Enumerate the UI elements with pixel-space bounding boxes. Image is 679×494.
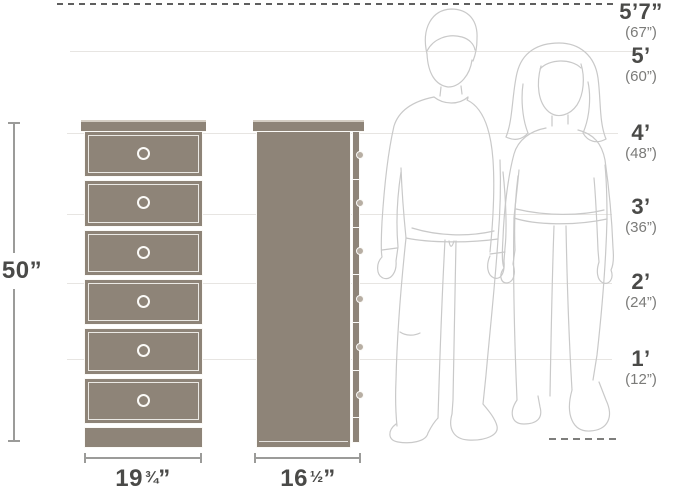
side-depth-label: 16½”: [253, 465, 363, 493]
height-dim-tick-bottom: [8, 440, 20, 442]
drawer-knob-profile: [356, 295, 364, 303]
dresser-side-top-surface: [253, 120, 364, 131]
drawer-knob: [137, 196, 150, 209]
height-label-2ft: 2’ (24”): [608, 271, 674, 310]
front-width-label: 19¾”: [88, 465, 198, 493]
product-dimension-diagram: 5’7” (67”) 5’ (60”) 4’ (48”) 3’ (36”) 2’…: [0, 0, 679, 494]
drawer-edge-4: [353, 275, 359, 323]
drawer-knob: [137, 147, 150, 160]
height-value: 2’: [608, 271, 674, 293]
drawer-knob: [137, 394, 150, 407]
man-figure: [378, 9, 506, 443]
drawer-knob-profile: [356, 199, 364, 207]
drawer-1: [84, 131, 203, 177]
drawer-edge-3: [353, 228, 359, 276]
height-inches: (60”): [608, 69, 674, 84]
side-depth-dim-line: [254, 457, 361, 459]
height-label-5ft: 5’ (60”): [608, 45, 674, 84]
drawer-6: [84, 378, 203, 424]
height-inches: (36”): [608, 220, 674, 235]
front-width-whole: 19: [115, 465, 143, 492]
drawer-2: [84, 180, 203, 226]
drawer-stack: [84, 131, 203, 424]
height-inches: (24”): [608, 295, 674, 310]
height-inches: (67”): [608, 25, 674, 40]
dresser-base: [84, 427, 203, 448]
drawer-fronts-edge: [352, 131, 360, 419]
height-value: 5’7”: [608, 1, 674, 23]
front-width-fraction: ¾: [145, 469, 158, 486]
height-label-3ft: 3’ (36”): [608, 196, 674, 235]
front-width-dim-line: [84, 457, 202, 459]
dresser-front-body: [84, 131, 203, 448]
drawer-4: [84, 279, 203, 325]
height-value: 3’: [608, 196, 674, 218]
dresser-side-base-edge: [352, 417, 360, 443]
side-depth-whole: 16: [280, 465, 308, 492]
height-value: 5’: [608, 45, 674, 67]
drawer-knob-profile: [356, 247, 364, 255]
drawer-knob: [137, 246, 150, 259]
side-depth-unit: ”: [323, 465, 336, 492]
drawer-knob: [137, 344, 150, 357]
woman-figure: [501, 43, 614, 431]
height-dimension-label: 50”: [0, 257, 44, 285]
drawer-knob-profile: [356, 343, 364, 351]
dresser-side-view: [253, 120, 366, 448]
drawer-5: [84, 328, 203, 374]
height-value: 4’: [608, 122, 674, 144]
dresser-top-surface: [81, 120, 206, 131]
height-dim-line-upper: [13, 123, 15, 253]
drawer-edge-1: [353, 132, 359, 180]
height-dim-line-lower: [13, 289, 15, 441]
drawer-edge-2: [353, 180, 359, 228]
height-value: 1’: [608, 348, 674, 370]
drawer-edge-6: [353, 371, 359, 418]
height-label-4ft: 4’ (48”): [608, 122, 674, 161]
front-width-unit: ”: [158, 465, 171, 492]
drawer-3: [84, 230, 203, 276]
drawer-knob-profile: [356, 151, 364, 159]
side-depth-fraction: ½: [310, 469, 323, 486]
height-inches: (12”): [608, 372, 674, 387]
height-label-5ft7: 5’7” (67”): [608, 1, 674, 40]
dresser-front-view: [81, 120, 206, 448]
dresser-side-panel: [256, 131, 351, 448]
height-label-1ft: 1’ (12”): [608, 348, 674, 387]
height-inches: (48”): [608, 146, 674, 161]
drawer-knob: [137, 295, 150, 308]
drawer-edge-5: [353, 323, 359, 371]
drawer-knob-profile: [356, 391, 364, 399]
